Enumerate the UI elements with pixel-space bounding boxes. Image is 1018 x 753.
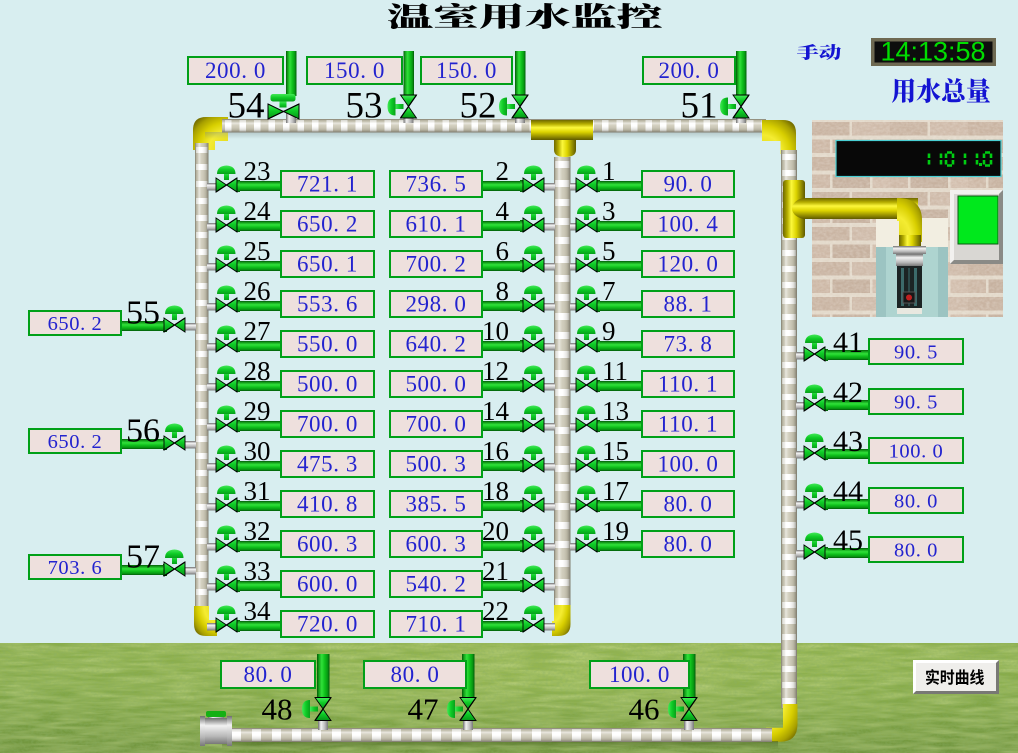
svg-text:700. 0: 700. 0: [405, 412, 466, 437]
svg-text:7: 7: [602, 276, 616, 306]
svg-text:3: 3: [602, 196, 616, 226]
svg-text:80. 0: 80. 0: [244, 662, 293, 687]
svg-text:51: 51: [681, 86, 718, 127]
svg-text:600. 0: 600. 0: [297, 572, 358, 597]
svg-text:53: 53: [346, 86, 383, 127]
svg-text:385. 5: 385. 5: [405, 492, 466, 517]
svg-text:8: 8: [496, 276, 510, 306]
svg-text:700. 0: 700. 0: [297, 412, 358, 437]
svg-text:640. 2: 640. 2: [405, 332, 466, 357]
svg-text:30: 30: [244, 436, 271, 466]
svg-text:47: 47: [408, 692, 439, 727]
svg-text:610. 1: 610. 1: [405, 212, 466, 237]
svg-text:46: 46: [629, 692, 660, 727]
svg-text:100. 0: 100. 0: [657, 452, 718, 477]
svg-text:736. 5: 736. 5: [405, 172, 466, 197]
svg-text:80. 0: 80. 0: [391, 662, 440, 687]
svg-text:31: 31: [244, 476, 271, 506]
svg-text:600. 3: 600. 3: [405, 532, 466, 557]
svg-text:553. 6: 553. 6: [297, 292, 358, 317]
svg-text:100. 4: 100. 4: [657, 212, 718, 237]
svg-text:650. 2: 650. 2: [48, 431, 103, 453]
svg-text:18: 18: [482, 476, 509, 506]
svg-text:48: 48: [262, 692, 293, 727]
svg-text:20: 20: [482, 516, 509, 546]
svg-text:57: 57: [126, 539, 160, 576]
svg-text:475. 3: 475. 3: [297, 452, 358, 477]
svg-text:15: 15: [602, 436, 629, 466]
svg-text:28: 28: [244, 356, 271, 386]
svg-text:110. 1: 110. 1: [658, 372, 718, 397]
svg-text:120. 0: 120. 0: [657, 252, 718, 277]
svg-text:90. 5: 90. 5: [894, 391, 938, 413]
svg-text:24: 24: [244, 196, 272, 226]
svg-text:17: 17: [602, 476, 629, 506]
svg-text:19: 19: [602, 516, 629, 546]
svg-text:80. 0: 80. 0: [894, 539, 938, 561]
svg-text:25: 25: [244, 236, 271, 266]
svg-text:80. 0: 80. 0: [664, 532, 713, 557]
svg-text:42: 42: [833, 376, 863, 409]
svg-text:90. 5: 90. 5: [894, 341, 938, 363]
svg-text:90. 0: 90. 0: [664, 172, 713, 197]
svg-text:13: 13: [602, 396, 629, 426]
svg-text:21: 21: [482, 556, 509, 586]
svg-text:52: 52: [460, 86, 497, 127]
svg-text:650. 2: 650. 2: [48, 313, 103, 335]
svg-text:80. 0: 80. 0: [894, 490, 938, 512]
svg-text:29: 29: [244, 396, 271, 426]
svg-text:721. 1: 721. 1: [297, 172, 358, 197]
svg-text:73. 8: 73. 8: [664, 332, 713, 357]
svg-text:43: 43: [833, 425, 863, 458]
svg-text:88. 1: 88. 1: [664, 292, 713, 317]
svg-text:26: 26: [244, 276, 271, 306]
svg-text:703. 6: 703. 6: [48, 557, 103, 579]
svg-text:650. 2: 650. 2: [297, 212, 358, 237]
svg-text:41: 41: [833, 326, 863, 359]
svg-text:5: 5: [602, 236, 616, 266]
svg-text:110. 1: 110. 1: [658, 412, 718, 437]
svg-text:34: 34: [244, 596, 272, 626]
svg-text:710. 1: 710. 1: [405, 612, 466, 637]
svg-text:56: 56: [126, 413, 160, 450]
svg-text:150. 0: 150. 0: [436, 58, 497, 83]
svg-text:650. 1: 650. 1: [297, 252, 358, 277]
svg-text:200. 0: 200. 0: [205, 58, 266, 83]
svg-text:16: 16: [482, 436, 509, 466]
svg-text:150. 0: 150. 0: [324, 58, 385, 83]
svg-text:12: 12: [482, 356, 509, 386]
svg-text:54: 54: [228, 86, 265, 127]
svg-text:11: 11: [602, 356, 628, 386]
svg-text:200. 0: 200. 0: [658, 58, 719, 83]
svg-text:55: 55: [126, 295, 160, 332]
svg-text:44: 44: [833, 475, 863, 508]
svg-text:500. 0: 500. 0: [405, 372, 466, 397]
svg-text:32: 32: [244, 516, 271, 546]
svg-text:9: 9: [602, 316, 616, 346]
svg-text:4: 4: [496, 196, 510, 226]
svg-text:33: 33: [244, 556, 271, 586]
svg-text:45: 45: [833, 524, 863, 557]
svg-text:80. 0: 80. 0: [664, 492, 713, 517]
svg-text:298. 0: 298. 0: [405, 292, 466, 317]
svg-text:10: 10: [482, 316, 509, 346]
svg-text:500. 0: 500. 0: [297, 372, 358, 397]
svg-text:2: 2: [496, 156, 510, 186]
svg-text:27: 27: [244, 316, 271, 346]
svg-text:6: 6: [496, 236, 510, 266]
svg-text:100. 0: 100. 0: [609, 662, 670, 687]
svg-text:14: 14: [482, 396, 510, 426]
svg-text:1: 1: [602, 156, 616, 186]
svg-text:540. 2: 540. 2: [405, 572, 466, 597]
svg-text:410. 8: 410. 8: [297, 492, 358, 517]
svg-text:500. 3: 500. 3: [405, 452, 466, 477]
svg-text:23: 23: [244, 156, 271, 186]
svg-text:550. 0: 550. 0: [297, 332, 358, 357]
svg-text:700. 2: 700. 2: [405, 252, 466, 277]
svg-text:22: 22: [482, 596, 509, 626]
svg-text:100. 0: 100. 0: [889, 440, 944, 462]
svg-text:600. 3: 600. 3: [297, 532, 358, 557]
svg-text:720. 0: 720. 0: [297, 612, 358, 637]
svg-text:14:13:58: 14:13:58: [880, 37, 985, 67]
